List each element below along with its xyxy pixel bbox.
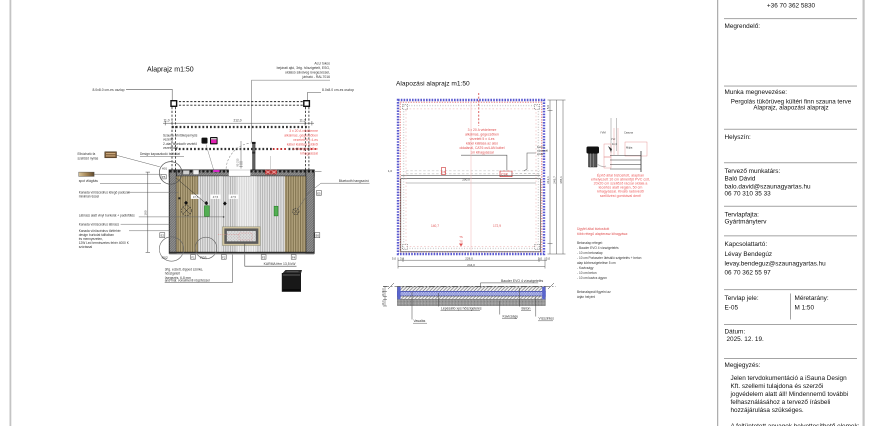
svg-text:47,5: 47,5 xyxy=(231,195,237,199)
svg-text:3,0: 3,0 xyxy=(538,256,543,260)
svg-text:Dátum:: Dátum: xyxy=(725,328,746,335)
svg-text:TS: TS xyxy=(459,240,463,244)
svg-text:47,5: 47,5 xyxy=(213,195,219,199)
svg-text:1m kihagyással: 1m kihagyással xyxy=(470,151,494,155)
svg-text:Kapcsolattartó:: Kapcsolattartó: xyxy=(725,241,768,248)
svg-text:felhasználásához a tervező írá: felhasználásához a tervező írásbeli xyxy=(731,399,831,406)
svg-text:szükséges 1,5 m: szükséges 1,5 m xyxy=(293,147,319,151)
svg-text:8.0x8.0 cm-es oszlop: 8.0x8.0 cm-es oszlop xyxy=(322,88,354,92)
svg-text:Bauder EVO 4 vízszigetelés: Bauder EVO 4 vízszigetelés xyxy=(501,279,544,283)
svg-text:Tervező munkatárs:: Tervező munkatárs: xyxy=(725,168,781,175)
svg-text:R02: R02 xyxy=(162,256,168,260)
svg-text:YVM: YVM xyxy=(600,131,606,135)
svg-text:06 70 310 35 33: 06 70 310 35 33 xyxy=(725,191,772,198)
svg-text:Jelen tervdokumentáció a iSaun: Jelen tervdokumentáció a iSauna Design xyxy=(731,375,848,382)
svg-text:Lépésálló xps hőszigetelés: Lépésálló xps hőszigetelés xyxy=(441,307,482,311)
svg-text:TS: TS xyxy=(459,235,463,239)
svg-text:Design kapaszkodó burkolat: Design kapaszkodó burkolat xyxy=(140,152,180,156)
svg-text:- 10 cm Porlaszter ütésálló sz: - 10 cm Porlaszter ütésálló szigetelés +… xyxy=(577,256,642,260)
svg-text:10,0: 10,0 xyxy=(381,291,385,297)
svg-text:ALU tokos: ALU tokos xyxy=(314,62,330,66)
svg-text:M 1:50: M 1:50 xyxy=(795,305,815,312)
svg-text:+36 70 362 5830: +36 70 362 5830 xyxy=(767,3,816,10)
svg-text:06 70 362 55 97: 06 70 362 55 97 xyxy=(725,270,772,277)
svg-text:11,0: 11,0 xyxy=(300,119,306,123)
svg-text:Baló Dávid: Baló Dávid xyxy=(725,176,756,183)
svg-text:and-mal: vonalmenti rögzítésse: and-mal: vonalmenti rögzítéssel xyxy=(165,279,210,283)
svg-text:5,0: 5,0 xyxy=(546,256,551,260)
svg-text:Méretarány:: Méretarány: xyxy=(795,295,829,302)
svg-text:Helyszín:: Helyszín: xyxy=(725,134,752,141)
svg-text:1,0: 1,0 xyxy=(388,169,393,173)
svg-text:- 10 cm betonalap: - 10 cm betonalap xyxy=(577,251,603,255)
svg-text:alkalmas, gégecsőben: alkalmas, gégecsőben xyxy=(284,133,318,137)
svg-text:járható - RAL7016: járható - RAL7016 xyxy=(301,75,330,79)
svg-text:245,7: 245,7 xyxy=(553,176,557,184)
svg-text:kihagyással: kihagyással xyxy=(300,151,318,155)
svg-text:5,0: 5,0 xyxy=(546,105,550,110)
svg-text:3 x 20 A védelemre: 3 x 20 A védelemre xyxy=(468,128,497,132)
svg-text:több rétegű alapterasz kihagyá: több rétegű alapterasz kihagyása: xyxy=(577,232,628,236)
svg-text:Gyártmányterv: Gyártmányterv xyxy=(725,218,768,225)
svg-text:10,0: 10,0 xyxy=(381,300,385,306)
svg-text:spot világítás: spot világítás xyxy=(79,179,99,183)
svg-text:Lábrács alatt vinyl burkolat +: Lábrács alatt vinyl burkolat + padlófűté… xyxy=(79,214,135,218)
svg-text:Müjta: Müjta xyxy=(626,146,633,150)
svg-text:Vasalás: Vasalás xyxy=(414,319,426,323)
svg-text:Ysz: Ysz xyxy=(611,137,616,141)
svg-text:Megjegyzés:: Megjegyzés: xyxy=(725,362,761,369)
svg-text:Alaprajz, alapozási alaprajz: Alaprajz, alapozási alaprajz xyxy=(753,105,828,112)
svg-text:2025. 12. 19.: 2025. 12. 19. xyxy=(727,336,765,343)
svg-text:E-05: E-05 xyxy=(725,305,739,312)
svg-text:244,0: 244,0 xyxy=(467,263,475,267)
svg-text:szellőző nyílás: szellőző nyílás xyxy=(78,156,99,160)
svg-text:Tervlap jele:: Tervlap jele: xyxy=(725,295,759,302)
svg-text:árján helyén!: árján helyén! xyxy=(577,295,595,299)
svg-text:Betonalap rétegei:: Betonalap rétegei: xyxy=(577,241,603,245)
svg-text:Kanada vöröscédrus lábrács: Kanada vöröscédrus lábrács xyxy=(79,222,120,226)
svg-text:- Bauder EVO 4 vízszigetelés: - Bauder EVO 4 vízszigetelés xyxy=(577,246,619,250)
svg-text:H01: H01 xyxy=(162,167,168,171)
svg-text:E2: E2 xyxy=(161,234,165,238)
svg-text:Beton: Beton xyxy=(522,307,531,311)
svg-text:Alaprajz m1:50: Alaprajz m1:50 xyxy=(147,66,194,73)
svg-text:Kavicságy: Kavicságy xyxy=(503,314,519,318)
svg-text:Tervlapfajta:: Tervlapfajta: xyxy=(725,211,760,218)
svg-text:11,0: 11,0 xyxy=(164,119,170,123)
svg-text:balo.david@szaunagyartas.hu: balo.david@szaunagyartas.hu xyxy=(725,183,812,190)
svg-text:alap körbeszigetelése 5 cm: alap körbeszigetelése 5 cm xyxy=(577,261,616,265)
svg-text:alkalmas, gégecsőben: alkalmas, gégecsőben xyxy=(465,133,499,137)
svg-text:szellőzést gombával dent!: szellőzést gombával dent! xyxy=(600,194,641,198)
svg-text:Megrendelő:: Megrendelő: xyxy=(725,23,761,30)
svg-text:bejárati ajtó, 3rtg. hőszigete: bejárati ajtó, 3rtg. hőszigetelt, ESG, xyxy=(277,66,330,70)
svg-text:- 10 cm beton: - 10 cm beton xyxy=(577,271,597,275)
svg-text:5,0: 5,0 xyxy=(381,288,385,292)
svg-text:95 215: 95 215 xyxy=(236,158,240,166)
svg-text:Lévay Bendegúz: Lévay Bendegúz xyxy=(725,251,773,258)
svg-text:172,9: 172,9 xyxy=(493,224,501,228)
svg-text:Kft. szellemi tulajdona és sze: Kft. szellemi tulajdona és szerzői xyxy=(731,383,824,390)
svg-text:- Kavicságy: - Kavicságy xyxy=(577,266,594,270)
svg-text:5,0: 5,0 xyxy=(392,256,397,260)
svg-text:E6: E6 xyxy=(316,234,320,238)
svg-text:140,7: 140,7 xyxy=(431,224,439,228)
svg-text:11,3: 11,3 xyxy=(612,142,617,146)
svg-text:vezetékkel: vezetékkel xyxy=(163,146,178,150)
svg-text:vezetett 5 x 4-es: vezetett 5 x 4-es xyxy=(470,137,495,141)
svg-text:levay.bendeguz@szaunagyartas.h: levay.bendeguz@szaunagyartas.hu xyxy=(725,260,827,267)
svg-text:oldalsó sävüveg üvegezéssel,: oldalsó sävüveg üvegezéssel, xyxy=(285,71,330,75)
svg-text:Vízszintes: Vízszintes xyxy=(539,317,555,321)
svg-text:jogvédelem alatt áll! Mindenne: jogvédelem alatt áll! Mindennemű további xyxy=(730,391,849,398)
svg-text:Bluetooth hangszóró: Bluetooth hangszóró xyxy=(339,179,369,183)
svg-text:F3: F3 xyxy=(262,255,266,259)
svg-text:F1: F1 xyxy=(191,255,195,259)
svg-text:P5: P5 xyxy=(162,175,166,179)
svg-text:minimál réssel: minimál réssel xyxy=(79,194,100,198)
svg-text:3,0: 3,0 xyxy=(400,256,405,260)
svg-text:Ügyfél által biztosított: Ügyfél által biztosított xyxy=(577,227,609,231)
svg-text:hozzájárulása szükséges.: hozzájárulása szükséges. xyxy=(731,407,804,414)
svg-text:212,1: 212,1 xyxy=(546,176,550,184)
svg-text:3 x 20 A védelemre: 3 x 20 A védelemre xyxy=(289,129,318,133)
svg-text:R03: R03 xyxy=(200,256,206,260)
svg-text:F2: F2 xyxy=(222,255,226,259)
svg-text:F4: F4 xyxy=(292,255,296,259)
svg-text:vezetett 5 x 4-es: vezetett 5 x 4-es xyxy=(293,138,318,142)
svg-text:212,0: 212,0 xyxy=(234,119,242,123)
svg-text:kábel kiállása felülről: kábel kiállása felülről xyxy=(287,142,319,146)
svg-text:Csauna: Csauna xyxy=(624,131,633,135)
svg-text:- 10 cm kavics ágyon: - 10 cm kavics ágyon xyxy=(577,276,607,280)
svg-text:Betonalapnál figyelni az: Betonalapnál figyelni az xyxy=(577,290,611,294)
svg-text:180: 180 xyxy=(143,210,147,215)
svg-text:KARMA fém 13,5 kW: KARMA fém 13,5 kW xyxy=(264,262,297,266)
svg-text:CS: CS xyxy=(442,170,446,174)
svg-text:200,0: 200,0 xyxy=(462,177,470,181)
svg-text:Alapozási alaprajz m1:50: Alapozási alaprajz m1:50 xyxy=(396,80,470,87)
svg-text:szórással: szórással xyxy=(79,245,93,249)
svg-text:365,1: 365,1 xyxy=(559,176,563,184)
svg-text:E5: E5 xyxy=(317,191,321,195)
svg-text:8.0x8.0 cm-es oszlop: 8.0x8.0 cm-es oszlop xyxy=(92,88,124,92)
svg-text:oldalánál, CAT6 os/LAN kábel: oldalánál, CAT6 os/LAN kábel xyxy=(460,146,505,150)
svg-text:Munka megnevezése:: Munka megnevezése: xyxy=(725,89,788,96)
svg-text:228,0: 228,0 xyxy=(465,256,473,260)
